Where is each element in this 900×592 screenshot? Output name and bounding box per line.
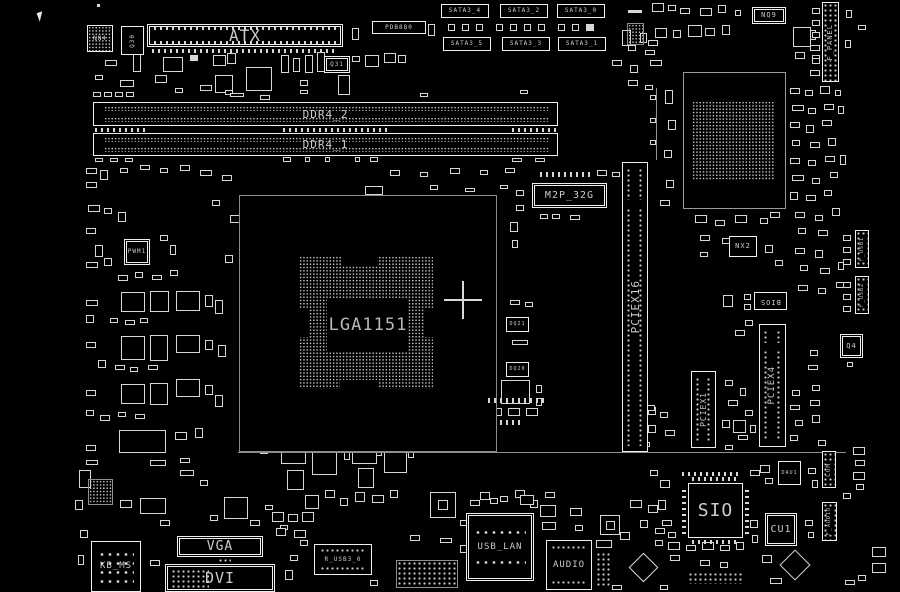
part [686,545,696,551]
part [735,215,747,223]
part [160,235,168,241]
part [628,80,638,86]
chip-q4-label: Q4 [846,343,856,350]
part [195,428,203,438]
part [808,468,816,474]
sata3-2-label: SATA3_2 [508,8,540,14]
label-pdb880-label: PDB880 [385,25,413,31]
part [508,408,520,416]
part [430,185,438,190]
part [265,505,273,510]
part [287,470,304,490]
part [110,158,118,162]
part [808,532,814,538]
sio-chip-label: SIO [698,502,734,520]
part [792,140,800,146]
part [843,235,851,241]
part [120,168,128,173]
chip-dq20-label: DQ20 [509,367,525,372]
part [822,120,832,126]
part [744,294,751,300]
part [140,498,166,514]
part [655,540,663,546]
part [750,520,758,528]
part [818,440,826,446]
f-panel-header-label: F_PANEL [827,24,834,61]
part [805,520,813,526]
part [815,250,823,258]
part [668,542,680,550]
part [526,408,538,416]
part [215,300,223,314]
part [648,40,658,46]
part [810,70,820,76]
sata3-4: SATA3_4 [441,4,489,18]
vga-connector-label: VGA [207,540,233,553]
part [516,205,524,211]
chip-q30: Q30 [121,26,144,55]
part [250,520,260,526]
part [760,218,768,224]
part [163,57,183,72]
trace-line [656,88,657,160]
part [160,168,168,173]
part [148,365,158,370]
part [118,275,128,281]
part [218,345,226,357]
part [150,560,160,566]
part [512,340,528,345]
part [288,514,298,522]
part [558,24,565,31]
part [516,190,524,196]
dvi-pins [171,569,209,588]
part [480,170,488,175]
part [180,470,194,476]
pin-dots [104,117,549,122]
part [658,500,666,510]
chip-q30-label: Q30 [130,34,136,48]
part [344,452,350,460]
part [175,432,187,440]
part [700,8,712,16]
sata3-1-label: SATA3_1 [566,41,598,47]
part [798,285,808,291]
part [655,28,667,38]
part [246,67,272,91]
sata3-5-label: SATA3_5 [451,41,483,47]
chip-pwm1-label: PWM1 [128,249,146,255]
pciex16-slot-label: PCIEX16 [630,280,641,333]
part [230,93,244,97]
pin-field-audio-right [596,552,612,586]
part [612,60,622,66]
sata3-3: SATA3_3 [502,37,550,51]
part [510,300,520,305]
part [660,480,670,488]
chip-dq21-label: DQ21 [509,322,525,327]
part [338,75,350,95]
pin-strip-sio [688,572,742,584]
part [750,470,760,476]
part [135,414,145,419]
part [520,90,528,94]
part [75,500,83,510]
part [302,512,314,522]
label-pdb880: PDB880 [372,21,426,34]
part [390,170,400,176]
part [224,497,248,519]
chip-q4: Q4 [840,334,863,358]
part [200,85,212,91]
part [88,205,100,212]
part [660,585,668,590]
ddr4-caps-3 [512,128,558,132]
part [825,156,835,162]
part [450,168,460,174]
part [668,5,676,11]
part [673,30,681,38]
part [476,24,483,31]
part [665,430,675,436]
part [846,10,852,18]
part [723,295,733,307]
part [121,292,145,312]
part [520,495,534,505]
part [853,447,865,455]
part [843,259,851,265]
part [210,515,218,521]
part [100,415,110,421]
part [700,252,708,257]
part [570,215,580,220]
ddr4-2-slot: DDR4_2 [93,102,558,126]
part [762,555,772,563]
part [810,350,818,356]
part [86,410,94,416]
pin-dots [154,27,338,30]
socket-label-label: LGA1151 [329,317,408,334]
part [155,75,167,83]
part [370,157,378,162]
part [688,25,702,37]
part [572,24,579,31]
part [828,138,836,146]
part [205,385,213,395]
part [390,490,398,498]
part [86,300,98,306]
vga-connector: VGA [177,536,263,557]
part [720,545,730,551]
part [775,260,783,266]
part [668,532,676,538]
bios-chip-label: BIOS [760,298,781,305]
part [790,122,800,128]
part [652,3,664,12]
part [640,520,648,528]
part [645,85,653,90]
ddr4-caps-2 [283,128,387,132]
sata3-1: SATA3_1 [558,37,606,51]
part [170,270,178,276]
part [650,60,662,66]
part [664,150,672,158]
part [670,555,680,561]
part [735,330,745,336]
part [227,53,236,64]
part [125,158,133,162]
part [792,390,800,396]
part [480,492,490,500]
part [620,532,630,540]
part [843,282,851,288]
part [832,208,840,216]
part [86,342,96,348]
part [276,528,286,536]
part [752,535,758,543]
part [612,585,622,590]
part [205,340,213,350]
part [293,58,300,72]
pin-dots [104,147,549,152]
f-usb1-header-label: F_USB1 [860,237,865,261]
part [78,555,84,565]
f-audio-header-label: F_AUDIO [827,507,832,535]
chip-nx2: NX2 [729,236,757,257]
part [812,415,820,423]
part [740,388,746,396]
part [140,318,148,323]
part [795,52,805,59]
ddr4-caps-1 [95,128,149,132]
part [428,24,435,36]
cross-v [462,281,464,319]
part [790,405,800,410]
part [540,505,556,517]
part [798,228,806,234]
part [700,560,710,566]
pin-dots [154,41,338,44]
part [325,157,330,162]
part [808,160,816,166]
part [352,28,359,40]
part [496,24,503,31]
part [200,480,208,486]
part [135,272,143,278]
part [119,430,166,453]
part [95,75,103,80]
part [793,27,811,47]
sio-chip-pins [692,540,739,544]
part [812,8,820,14]
part [790,158,800,164]
r-usb30-pins-bot [320,566,366,572]
part [510,222,518,232]
part [98,360,106,368]
dvi-connector-label: DVI [205,571,235,586]
part [294,530,306,538]
part [630,65,638,73]
sio-top-pads [682,472,742,476]
pciex1-slot: PCIEX1 [691,371,716,448]
part [512,158,522,162]
part [805,90,813,96]
part [140,165,150,170]
part [118,212,126,222]
part [312,452,337,475]
part [810,142,820,148]
part [853,472,865,480]
part [86,460,98,465]
part [120,80,134,87]
part [806,195,816,201]
part [130,367,138,372]
part [722,25,730,35]
part [790,192,798,200]
chip-cu1-label: CU1 [770,525,791,535]
chip-q31-label: Q31 [330,62,344,68]
part [384,53,396,63]
part [86,445,96,451]
audio-codec-label: AUDIO [553,561,585,570]
part [510,24,517,31]
part [818,230,828,236]
part [812,58,820,64]
part [420,93,428,97]
part [820,268,830,274]
chip-dq20: DQ20 [506,362,529,377]
part [465,188,475,192]
part [680,8,690,14]
part [770,578,782,584]
pin-dots [104,137,549,142]
sio-chip-pins-left [682,487,686,534]
part [790,435,798,441]
part [812,178,820,184]
part [872,563,886,573]
part [815,215,823,221]
kb-ms-pins [98,550,134,584]
part [722,420,730,428]
part [760,465,770,473]
part [648,425,656,433]
m2-connector-label: M2P_32G [545,191,594,201]
part [745,410,753,416]
part [355,157,360,162]
pads-row-2 [500,420,524,425]
part [524,24,531,31]
part [370,580,378,586]
notch-top [341,256,377,265]
part [765,245,773,253]
part [115,365,125,370]
part [462,24,469,31]
part [95,245,103,257]
part [818,288,826,294]
chip-nn4: NN4 [87,25,113,52]
part [490,498,498,504]
part [575,525,583,531]
part [606,521,615,530]
part [104,92,112,97]
part [200,170,212,176]
part [858,575,866,581]
f-usb2-header: F_USB2 [855,276,869,314]
part [800,265,808,271]
part [104,258,112,266]
part [808,108,816,114]
part [820,86,830,94]
chip-dau1-label: DAU1 [781,471,797,476]
part [118,412,126,417]
part [212,200,220,206]
part [260,95,270,100]
part [733,420,746,433]
chip-q31: Q31 [324,56,350,73]
part [86,315,94,323]
part [440,538,452,543]
part [843,493,851,499]
part [115,92,123,97]
part [285,570,293,580]
m2-connector: M2P_32G [532,183,607,208]
com-header: COM [822,451,836,488]
front-header [396,560,458,588]
part [95,158,103,162]
part [750,425,756,433]
part [843,294,851,300]
r-usb30-pins-top [320,548,366,554]
part [176,291,200,311]
part [365,55,379,67]
m2-pads [540,172,590,177]
part [843,306,851,312]
pciex4-slot-label: PCIEX4 [768,366,777,405]
part [176,335,200,353]
part [795,420,803,426]
part [160,520,170,526]
part [655,528,665,534]
f-usb1-header: F_USB1 [855,230,869,268]
atx-connector: ATX [147,24,343,47]
part [792,175,804,181]
part [612,172,620,177]
part [812,32,820,38]
part [305,157,310,162]
part [840,155,846,165]
part [666,180,674,188]
part [792,105,804,111]
part [720,562,728,568]
part [300,540,308,546]
mouse-cursor [37,11,46,22]
part [810,400,820,406]
part [355,492,365,502]
part [596,540,612,548]
bga-corner [88,479,113,505]
part [855,460,865,466]
part [824,104,834,110]
chip-dq21: DQ21 [506,317,529,332]
part [398,55,406,63]
notch-left [299,309,308,337]
atx-pin-row [152,49,338,53]
com-header-label: COM [826,463,832,477]
part [213,55,226,66]
part [438,500,448,510]
notch-right [424,309,433,337]
part [824,190,832,196]
